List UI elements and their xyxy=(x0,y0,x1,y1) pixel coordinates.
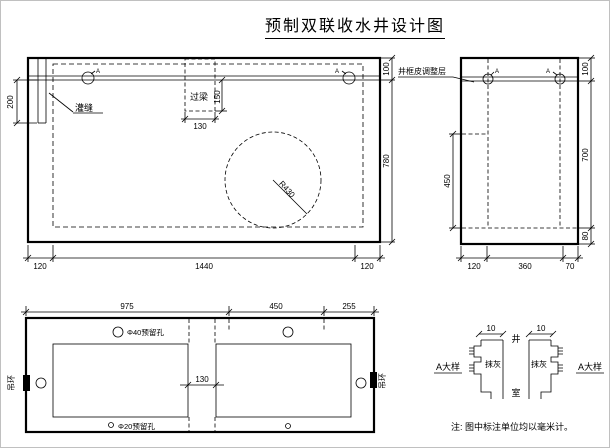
dim-450: 450 xyxy=(443,174,452,188)
plaster-label-right: 抹灰 xyxy=(531,359,547,369)
dim-120-left: 120 xyxy=(33,262,47,271)
grate-opening-right xyxy=(216,344,351,417)
svg-text:A大样: A大样 xyxy=(578,361,602,372)
hole-20-label: Φ20预留孔 xyxy=(118,421,155,431)
front-hidden-inner-wall xyxy=(53,64,363,227)
plaster-label-left: 抹灰 xyxy=(485,359,501,369)
lintel-hidden-rect xyxy=(185,59,215,111)
detail-dim-left: 10 xyxy=(476,324,506,337)
section-a-label: A xyxy=(546,69,550,75)
hole-20-left xyxy=(109,423,114,428)
grate-opening-left xyxy=(53,344,188,417)
cad-drawing: R430 A A 灌缝 过梁 xyxy=(1,1,610,448)
side-right-dims: 100 700 80 xyxy=(579,55,595,247)
dim-360: 360 xyxy=(518,262,532,271)
dim-130: 130 xyxy=(195,375,209,384)
grout-seam-callout: 灌缝 xyxy=(49,93,103,113)
drawing-canvas: 预制双联收水井设计图 R430 xyxy=(0,0,610,448)
adjust-layer-label: 井框皮调整层 xyxy=(398,66,446,76)
dim-255: 255 xyxy=(342,302,356,311)
hole-40-left xyxy=(113,327,123,337)
dim-120-right: 120 xyxy=(360,262,374,271)
detail-title-right: A大样 xyxy=(576,361,604,373)
detail-view: 10 10 井 室 抹灰 抹灰 A大样 A大样 xyxy=(434,324,604,399)
front-section-marker-left: A xyxy=(82,69,100,84)
front-section-marker-right: A xyxy=(335,69,355,84)
top-dims: 975 450 255 xyxy=(21,302,379,316)
hole-20-right xyxy=(286,424,291,429)
adjust-layer-callout: 井框皮调整层 xyxy=(398,66,474,82)
grout-seam-label: 灌缝 xyxy=(75,102,93,113)
detail-wall-left xyxy=(469,340,503,399)
hole-40-label: Φ40预留孔 xyxy=(127,327,164,337)
top-view: 975 450 255 Φ40预留孔 Φ20预留孔 130 吊环 xyxy=(7,302,387,432)
side-outline xyxy=(461,58,578,244)
dim-150: 150 xyxy=(213,90,222,104)
units-note: 注: 图中标注单位均以毫米计。 xyxy=(451,421,573,432)
dim-450: 450 xyxy=(269,302,283,311)
front-left-dim: 200 xyxy=(6,77,37,126)
lintel-label: 过梁 xyxy=(190,91,208,102)
center-dim: 130 xyxy=(180,375,224,388)
hoist-ring-right: 吊环 xyxy=(356,372,387,389)
well-label: 井 xyxy=(511,333,520,344)
radius-label: R430 xyxy=(277,179,297,200)
detail-wall-right xyxy=(529,340,563,399)
detail-dim-right: 10 xyxy=(526,324,556,337)
dim-70: 70 xyxy=(566,262,575,271)
side-view: 井框皮调整层 A A xyxy=(398,55,595,271)
side-bottom-dims: 120 360 70 xyxy=(456,246,583,271)
hoist-ring-label: 吊环 xyxy=(7,375,16,391)
side-section-marker-right: A xyxy=(546,69,565,84)
svg-text:A大样: A大样 xyxy=(436,361,460,372)
front-outline xyxy=(28,58,380,242)
dim-975: 975 xyxy=(120,302,134,311)
hoist-ring-label: 吊环 xyxy=(378,373,387,389)
dim-780: 780 xyxy=(382,154,391,168)
front-right-dims: 100 780 xyxy=(381,55,395,245)
dim-10: 10 xyxy=(537,324,546,333)
dim-100: 100 xyxy=(382,62,391,76)
section-a-label: A xyxy=(96,69,100,75)
hole-40-right xyxy=(283,327,293,337)
grout-seam-strip xyxy=(38,59,46,123)
dim-120: 120 xyxy=(467,262,481,271)
detail-title-left: A大样 xyxy=(434,361,462,373)
lintel-width-dim: 130 xyxy=(181,112,219,131)
side-left-dim: 450 xyxy=(443,131,460,231)
dim-1440: 1440 xyxy=(195,262,213,271)
front-bottom-dims: 120 1440 120 xyxy=(23,245,385,271)
front-view: R430 A A 灌缝 过梁 xyxy=(6,55,395,271)
section-a-label: A xyxy=(335,69,339,75)
dim-130: 130 xyxy=(193,122,207,131)
dim-700: 700 xyxy=(581,148,590,162)
section-a-label: A xyxy=(495,69,499,75)
dim-80: 80 xyxy=(581,231,590,240)
side-section-marker-left: A xyxy=(483,69,499,84)
dim-100: 100 xyxy=(581,62,590,76)
hoist-ring-left: 吊环 xyxy=(7,375,46,391)
dim-200: 200 xyxy=(6,95,15,109)
dim-10: 10 xyxy=(487,324,496,333)
chamber-label: 室 xyxy=(511,387,520,398)
